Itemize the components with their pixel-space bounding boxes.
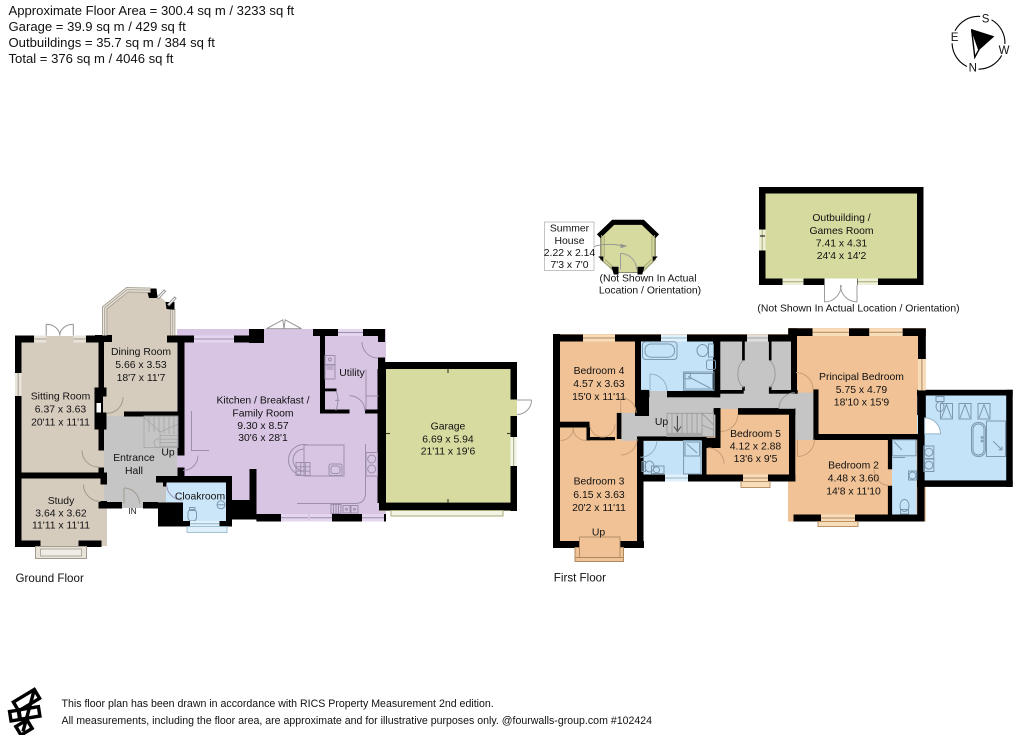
svg-text:House: House (554, 236, 584, 247)
svg-text:E: E (951, 32, 959, 44)
svg-text:Principal Bedroom: Principal Bedroom (819, 372, 904, 383)
svg-text:Approximate Floor Area = 300.4: Approximate Floor Area = 300.4 sq m / 32… (9, 3, 295, 18)
svg-text:20'2 x 11'11: 20'2 x 11'11 (572, 503, 626, 514)
svg-text:Up: Up (592, 528, 606, 539)
svg-text:Up: Up (161, 448, 175, 459)
svg-text:This floor plan has been drawn: This floor plan has been drawn in accord… (62, 698, 494, 710)
svg-text:9.30 x 8.57: 9.30 x 8.57 (237, 421, 289, 432)
svg-text:4.57 x 3.63: 4.57 x 3.63 (573, 379, 625, 390)
svg-text:3.64 x 3.62: 3.64 x 3.62 (35, 509, 87, 520)
svg-text:Bedroom 4: Bedroom 4 (574, 366, 625, 377)
svg-text:Total = 376 sq m / 4046 sq ft: Total = 376 sq m / 4046 sq ft (9, 51, 174, 66)
svg-text:6.69 x 5.94: 6.69 x 5.94 (422, 435, 474, 446)
svg-text:Utility: Utility (339, 368, 365, 379)
svg-text:(Not Shown In Actual Location: (Not Shown In Actual Location / Orientat… (757, 304, 959, 315)
svg-text:21'11 x 19'6: 21'11 x 19'6 (421, 447, 476, 458)
svg-text:7.41 x 4.31: 7.41 x 4.31 (816, 239, 868, 250)
svg-text:6.15 x 3.63: 6.15 x 3.63 (573, 490, 625, 501)
svg-text:5.66 x 3.53: 5.66 x 3.53 (115, 360, 167, 371)
svg-text:IN: IN (129, 507, 137, 516)
svg-text:Hall: Hall (125, 466, 143, 477)
svg-text:Ground Floor: Ground Floor (16, 572, 84, 585)
svg-text:15'0 x 11'11: 15'0 x 11'11 (572, 392, 626, 403)
svg-text:All measurements, including th: All measurements, including the floor ar… (62, 715, 653, 727)
svg-text:6.37 x 3.63: 6.37 x 3.63 (35, 405, 87, 416)
svg-text:N: N (969, 63, 977, 75)
svg-text:Sitting Room: Sitting Room (31, 392, 90, 403)
svg-text:Summer: Summer (550, 224, 590, 235)
svg-text:Bedroom 3: Bedroom 3 (574, 477, 625, 488)
svg-text:S: S (982, 14, 990, 26)
svg-text:First Floor: First Floor (554, 572, 606, 585)
svg-text:11'11 x 11'11: 11'11 x 11'11 (32, 521, 90, 532)
svg-text:(Not Shown In Actual: (Not Shown In Actual (599, 274, 696, 285)
svg-text:Kitchen / Breakfast /: Kitchen / Breakfast / (217, 396, 310, 407)
svg-text:Garage = 39.9 sq m / 429 sq ft: Garage = 39.9 sq m / 429 sq ft (9, 19, 187, 34)
svg-text:2.22 x 2.14: 2.22 x 2.14 (544, 248, 596, 259)
svg-text:Games Room: Games Room (809, 226, 873, 237)
svg-text:4.48 x 3.60: 4.48 x 3.60 (828, 474, 880, 485)
svg-text:Study: Study (48, 496, 75, 507)
svg-text:Cloakroom: Cloakroom (175, 492, 225, 503)
svg-text:18'7 x 11'7: 18'7 x 11'7 (117, 373, 166, 384)
svg-text:7'3 x 7'0: 7'3 x 7'0 (550, 260, 588, 271)
svg-text:Bedroom 5: Bedroom 5 (730, 429, 781, 440)
svg-text:Up: Up (655, 417, 669, 428)
svg-text:Bedroom 2: Bedroom 2 (828, 461, 879, 472)
svg-text:Dining Room: Dining Room (111, 347, 171, 358)
svg-text:Outbuildings = 35.7 sq m / 384: Outbuildings = 35.7 sq m / 384 sq ft (9, 35, 216, 50)
svg-text:Outbuilding /: Outbuilding / (812, 213, 870, 224)
svg-text:24'4 x 14'2: 24'4 x 14'2 (817, 251, 867, 262)
svg-text:30'6 x 28'1: 30'6 x 28'1 (238, 433, 288, 444)
svg-text:Location / Orientation): Location / Orientation) (599, 286, 701, 297)
svg-text:20'11 x 11'11: 20'11 x 11'11 (31, 418, 90, 429)
svg-text:14'8 x 11'10: 14'8 x 11'10 (826, 487, 881, 498)
svg-text:18'10 x 15'9: 18'10 x 15'9 (834, 398, 890, 409)
svg-text:Entrance: Entrance (113, 453, 155, 464)
svg-text:5.75 x 4.79: 5.75 x 4.79 (836, 385, 888, 396)
svg-text:Family Room: Family Room (232, 409, 293, 420)
svg-text:W: W (999, 45, 1010, 57)
svg-text:13'6 x 9'5: 13'6 x 9'5 (734, 454, 778, 465)
svg-text:4.12 x 2.88: 4.12 x 2.88 (730, 442, 782, 453)
svg-text:Garage: Garage (431, 422, 466, 433)
